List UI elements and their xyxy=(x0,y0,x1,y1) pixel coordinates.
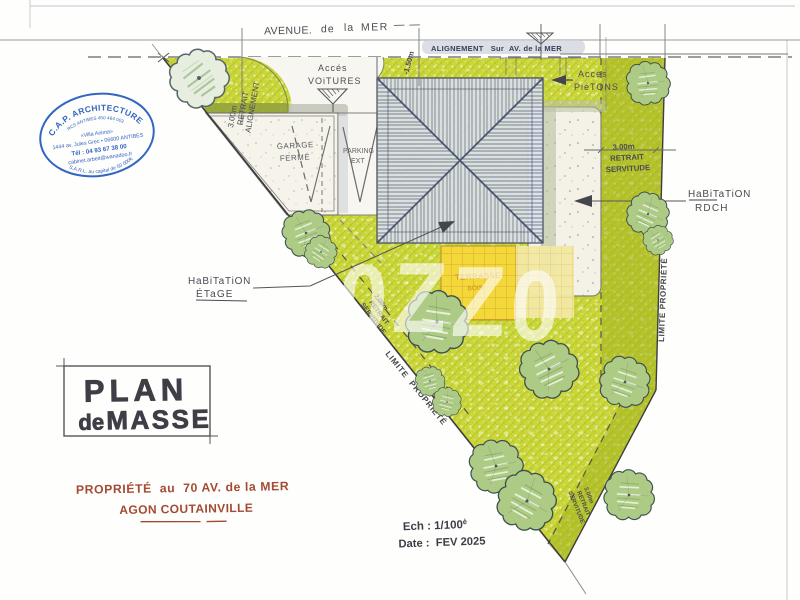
svg-text:PiéTONS: PiéTONS xyxy=(574,82,619,92)
svg-text:MER: MER xyxy=(361,21,389,33)
svg-text:Accés: Accés xyxy=(578,69,608,79)
svg-text:— —: — — xyxy=(394,19,421,31)
svg-text:HaBiTaTiON: HaBiTaTiON xyxy=(688,189,751,200)
svg-text:AGON COUTAINVILLE: AGON COUTAINVILLE xyxy=(119,501,253,517)
svg-text:0ZZ0: 0ZZ0 xyxy=(336,242,568,361)
svg-text:AVENUE.: AVENUE. xyxy=(264,24,312,37)
svg-text:ALIGNEMENT Sur AV. de la ME: ALIGNEMENT Sur AV. de la MER xyxy=(431,44,562,53)
svg-text:MASSE: MASSE xyxy=(106,404,211,436)
svg-text:de: de xyxy=(321,23,335,35)
svg-text:HaBiTaTiON: HaBiTaTiON xyxy=(188,276,251,287)
svg-text:ÉTaGE: ÉTaGE xyxy=(196,287,234,300)
svg-text:RETRAIT: RETRAIT xyxy=(610,152,644,163)
svg-text:la: la xyxy=(344,22,354,34)
svg-text:de: de xyxy=(78,409,104,434)
svg-text:PARKING: PARKING xyxy=(343,148,374,155)
svg-text:EXT: EXT xyxy=(351,158,365,165)
svg-text:VOiTURES: VOiTURES xyxy=(308,76,362,86)
svg-text:RDCH: RDCH xyxy=(695,203,729,214)
svg-text:FERMÉ: FERMÉ xyxy=(280,152,311,163)
svg-text:Accés: Accés xyxy=(318,63,348,73)
